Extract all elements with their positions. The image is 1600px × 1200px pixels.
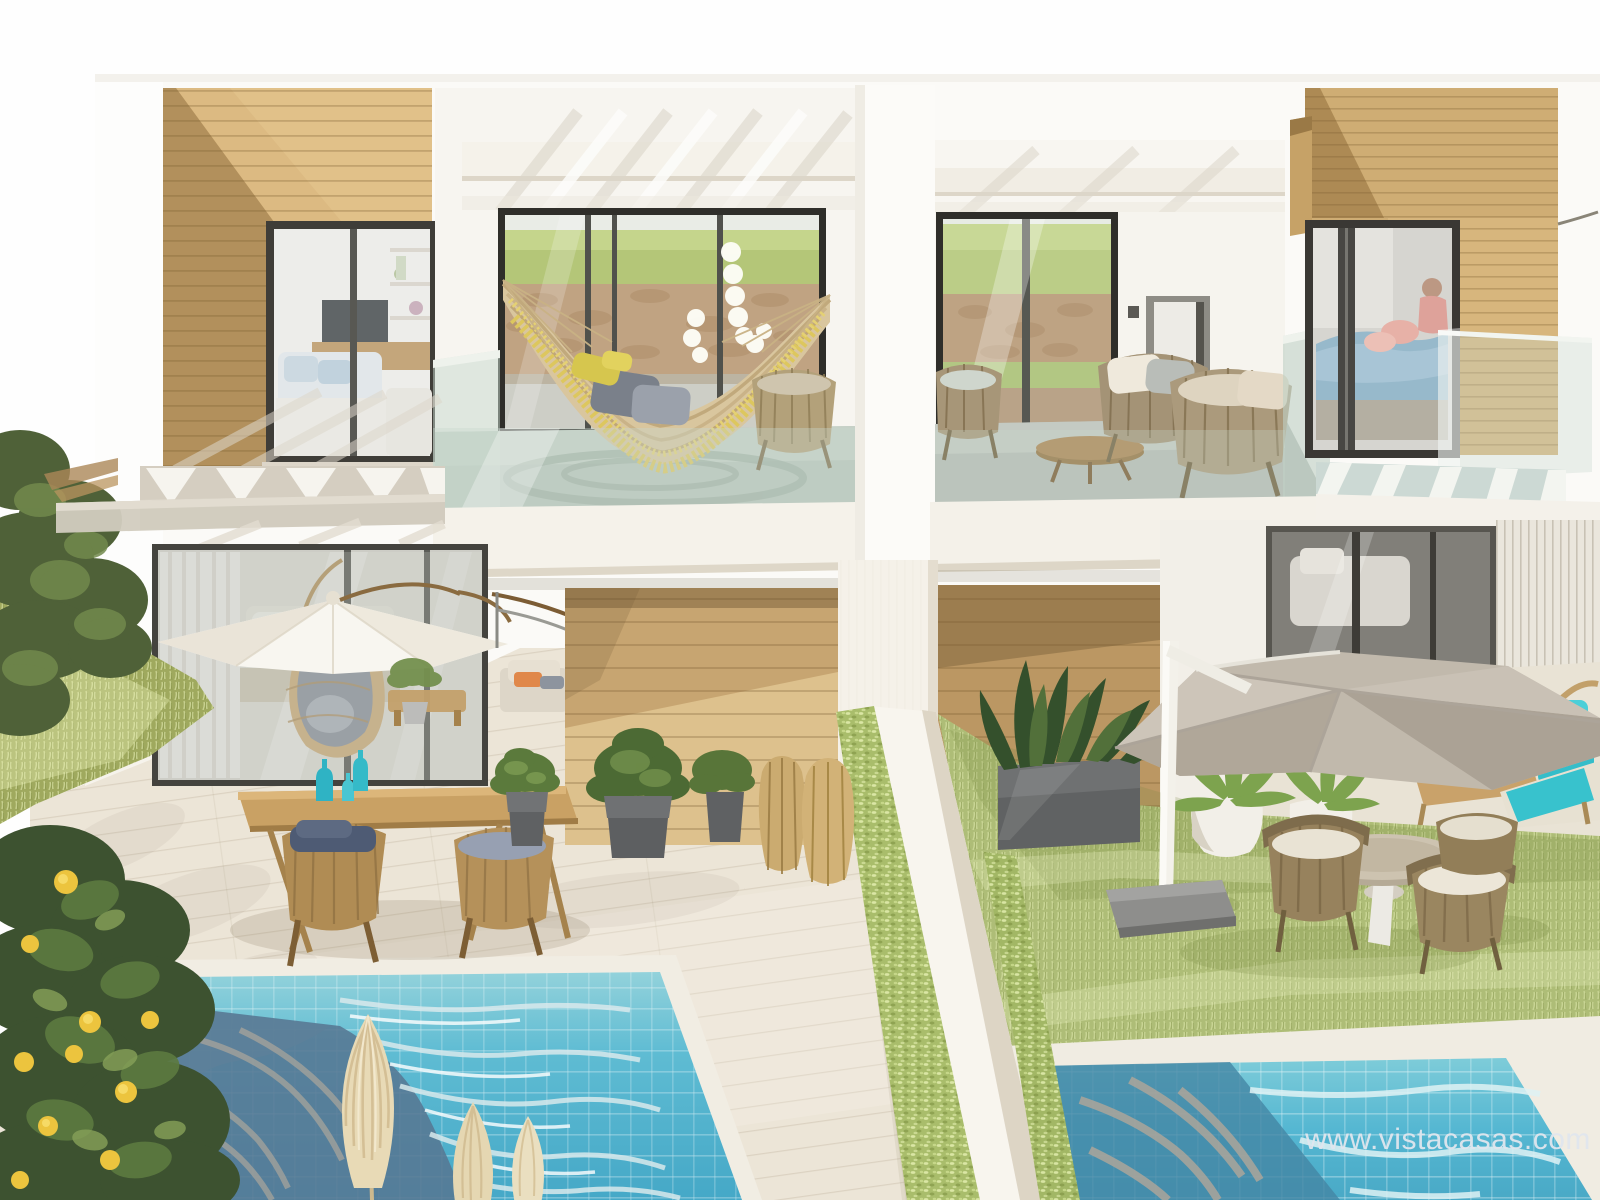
svg-text:www.vistacasas.com: www.vistacasas.com (1304, 1123, 1591, 1156)
